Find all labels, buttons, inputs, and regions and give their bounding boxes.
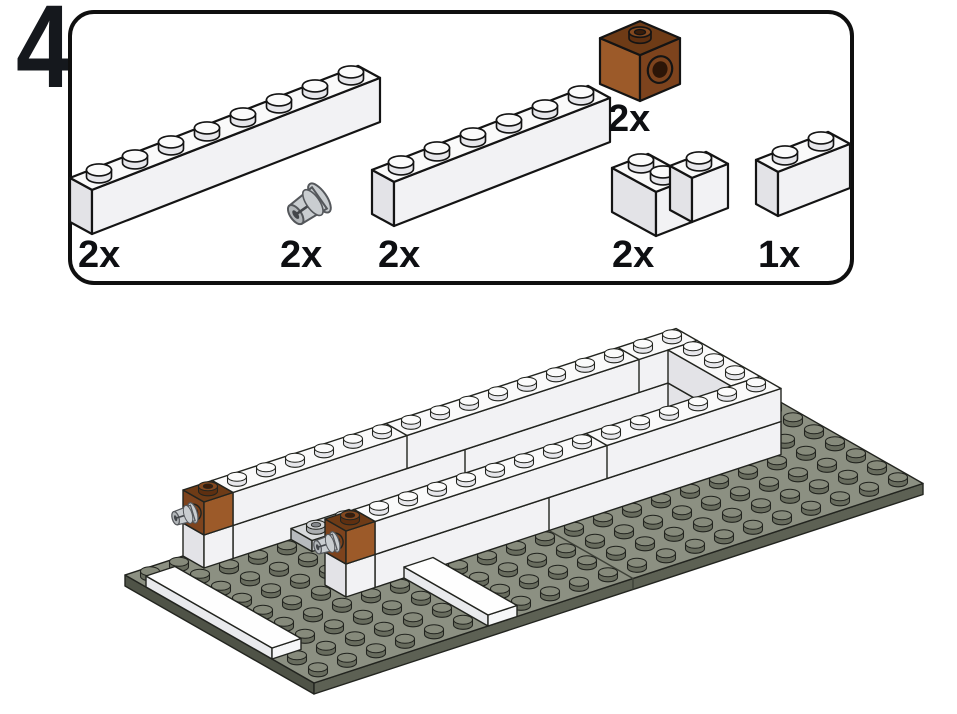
part-qty-brick-2x2-corner: 2x (612, 236, 654, 274)
part-qty-brick-1x2: 1x (758, 236, 800, 274)
part-qty-brick-1x6: 2x (378, 236, 420, 274)
part-qty-pin-gray: 2x (280, 236, 322, 274)
instruction-page: { "page": { "background": "#ffffff" }, "… (0, 0, 957, 714)
part-qty-brick-1x1-technic: 2x (608, 100, 650, 138)
lego-illustration (0, 0, 957, 714)
part-qty-brick-1x8: 2x (78, 236, 120, 274)
